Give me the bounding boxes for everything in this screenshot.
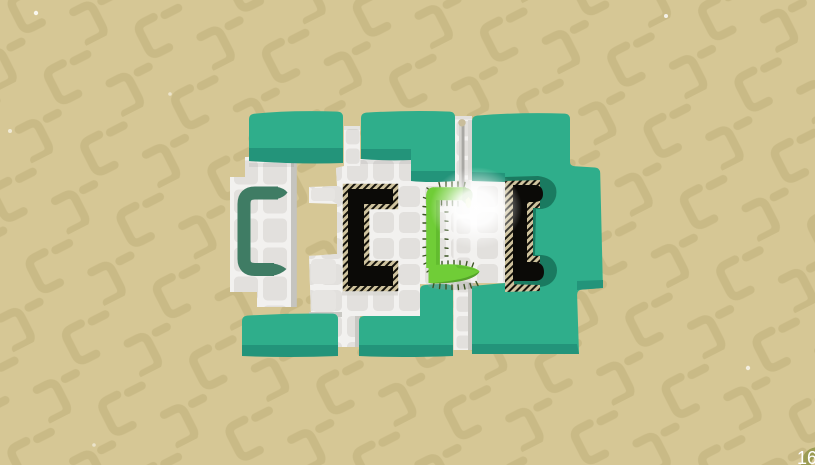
svg-text:16: 16: [797, 448, 815, 465]
